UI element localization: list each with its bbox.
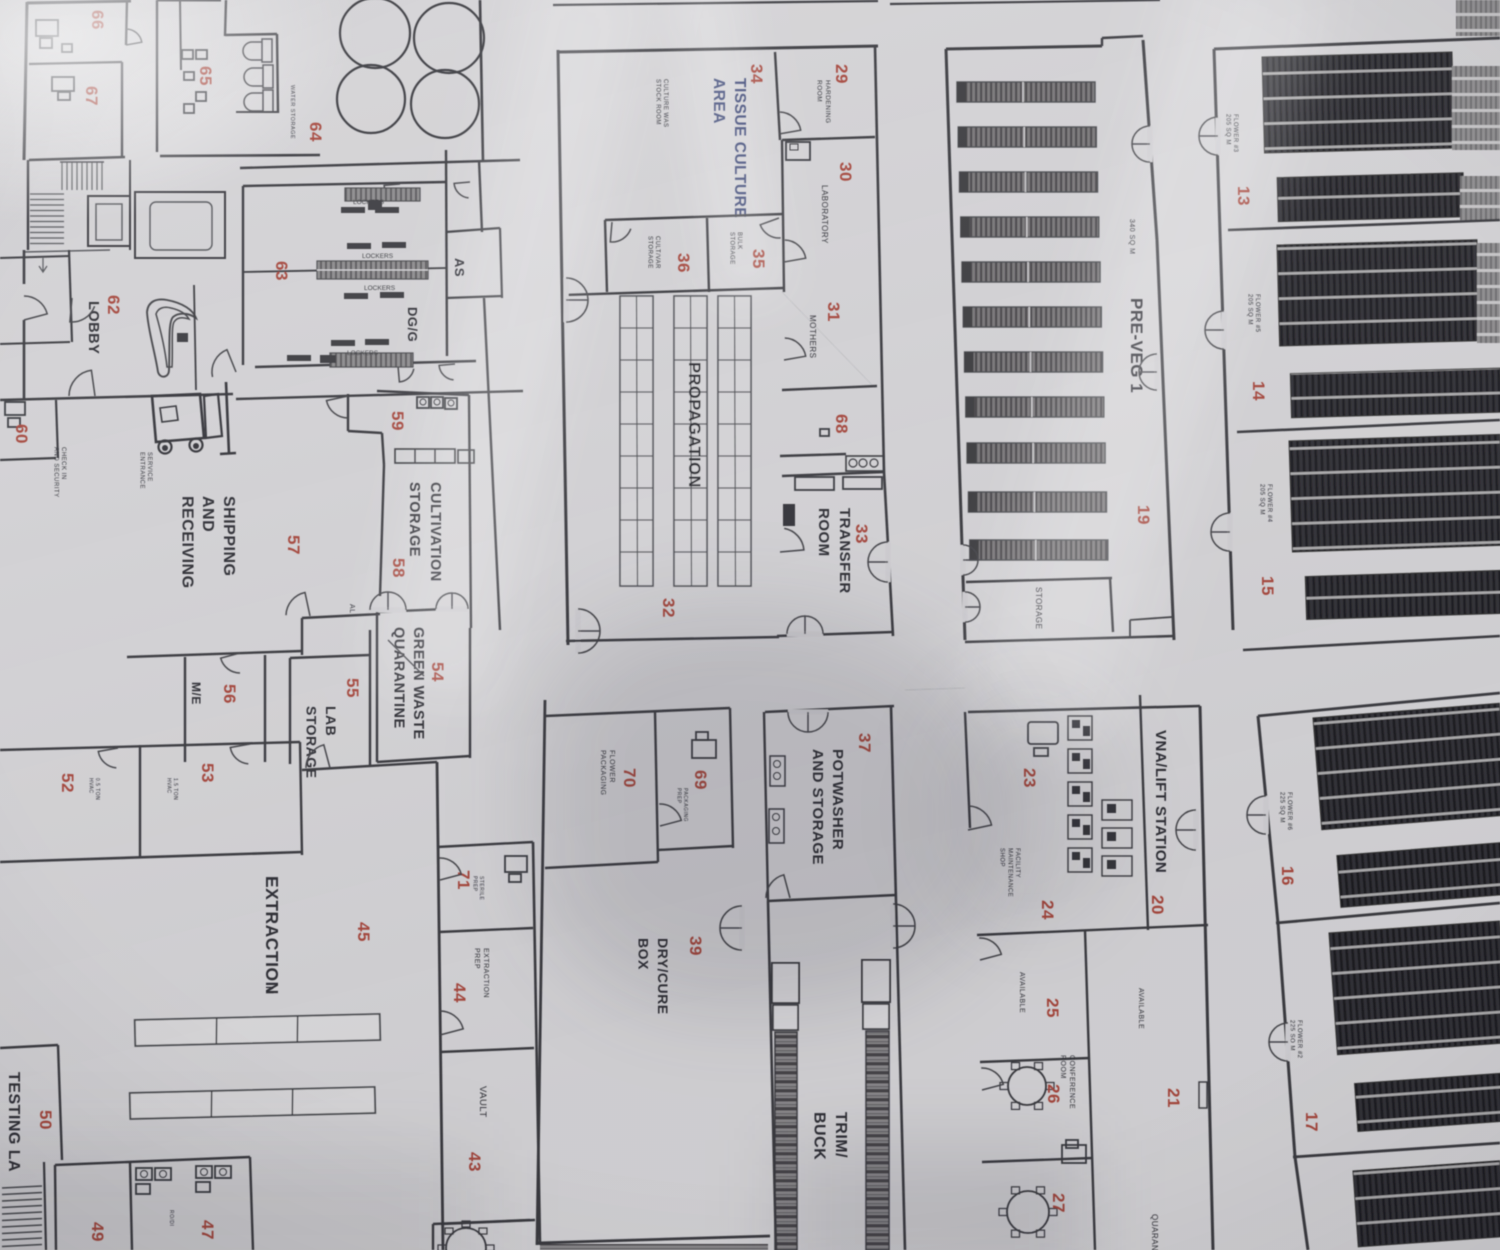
svg-text:RO/DI: RO/DI	[168, 1210, 174, 1226]
svg-text:STERILEPREP: STERILEPREP	[472, 876, 484, 901]
svg-text:23: 23	[1020, 768, 1039, 788]
svg-text:MOTHERS: MOTHERS	[808, 315, 817, 359]
svg-text:N: N	[263, 986, 275, 994]
svg-text:69: 69	[691, 770, 710, 790]
svg-text:14: 14	[1249, 381, 1268, 401]
svg-text:35: 35	[749, 249, 768, 269]
svg-text:STORAGE: STORAGE	[1034, 587, 1043, 629]
svg-text:LOCKERS: LOCKERS	[362, 253, 394, 260]
svg-text:45: 45	[354, 922, 373, 942]
svg-text:FLOWER #4205 SQ M: FLOWER #4205 SQ M	[1258, 484, 1272, 523]
svg-text:44: 44	[450, 983, 469, 1003]
svg-text:CULT/VARSTORAGE: CULT/VARSTORAGE	[646, 236, 660, 269]
svg-text:25: 25	[1043, 998, 1062, 1018]
svg-text:27: 27	[1049, 1193, 1068, 1213]
svg-text:31: 31	[824, 302, 843, 322]
svg-text:54: 54	[428, 662, 447, 682]
svg-text:0.5 TONHVAC: 0.5 TONHVAC	[88, 778, 100, 800]
svg-text:QUARANTINE: QUARANTINE	[1150, 1214, 1159, 1250]
svg-text:CULTIVATIONSTORAGE: CULTIVATIONSTORAGE	[406, 482, 443, 582]
svg-text:66: 66	[88, 10, 107, 30]
svg-text:1.5 TONHVAC: 1.5 TONHVAC	[166, 778, 178, 800]
svg-text:LOCKERS: LOCKERS	[364, 285, 396, 292]
svg-text:VAULT: VAULT	[477, 1086, 488, 1118]
svg-text:70: 70	[620, 768, 639, 788]
svg-text:POTWASHERAND STORAGE: POTWASHERAND STORAGE	[809, 749, 846, 865]
svg-text:TESTING LA: TESTING LA	[5, 1072, 22, 1172]
svg-text:TISSUE CULTUREAREA: TISSUE CULTUREAREA	[710, 78, 748, 218]
svg-text:52: 52	[58, 773, 77, 793]
svg-text:50: 50	[36, 1110, 55, 1130]
svg-text:59: 59	[388, 411, 407, 431]
svg-text:15: 15	[1258, 576, 1277, 596]
svg-text:33: 33	[852, 524, 871, 544]
svg-text:26: 26	[1044, 1084, 1063, 1104]
svg-text:64: 64	[306, 122, 325, 142]
svg-text:CHECK INAND SECURITY: CHECK INAND SECURITY	[52, 447, 66, 498]
svg-text:39: 39	[686, 936, 705, 956]
svg-text:65: 65	[196, 66, 215, 86]
svg-text:36: 36	[674, 253, 693, 273]
svg-text:PROPAGATION: PROPAGATION	[685, 362, 703, 488]
svg-text:PRE-VEG 1: PRE-VEG 1	[1127, 298, 1146, 393]
svg-text:FLOWER #3205 SQ M: FLOWER #3205 SQ M	[1224, 114, 1238, 153]
svg-text:FLOWER #5205 SQ M: FLOWER #5205 SQ M	[1246, 294, 1260, 333]
svg-text:AVAILABLE: AVAILABLE	[1018, 972, 1025, 1013]
svg-text:EXTRACTION: EXTRACTION	[262, 876, 282, 995]
svg-text:WATER STORAGE: WATER STORAGE	[289, 85, 295, 139]
svg-text:FLOWERPACKAGING: FLOWERPACKAGING	[599, 750, 615, 796]
svg-text:71: 71	[454, 870, 473, 890]
svg-text:VNA/LIFT STATION: VNA/LIFT STATION	[1152, 730, 1169, 873]
svg-text:68: 68	[832, 414, 851, 434]
svg-text:CULTURE WASSTOCK ROOM: CULTURE WASSTOCK ROOM	[654, 79, 668, 128]
svg-text:M/E: M/E	[189, 682, 203, 705]
svg-text:BULKSTORAGE: BULKSTORAGE	[728, 232, 742, 265]
svg-text:SERVICEENTRANCE: SERVICEENTRANCE	[138, 452, 152, 489]
svg-text:47: 47	[198, 1220, 217, 1240]
svg-text:63: 63	[272, 261, 291, 281]
svg-text:HARDENINGROOM: HARDENINGROOM	[816, 80, 831, 124]
svg-text:57: 57	[284, 535, 303, 555]
svg-text:24: 24	[1038, 900, 1057, 920]
svg-text:340 SQ M: 340 SQ M	[1128, 219, 1135, 255]
svg-text:SHIPPINGANDRECEIVING: SHIPPINGANDRECEIVING	[178, 496, 237, 589]
svg-text:58: 58	[389, 558, 408, 578]
svg-text:55: 55	[343, 678, 362, 698]
svg-text:17: 17	[1302, 1112, 1321, 1132]
svg-text:21: 21	[1164, 1088, 1183, 1108]
svg-text:16: 16	[1278, 866, 1297, 886]
svg-text:67: 67	[82, 86, 101, 106]
svg-text:DRY/CUREBOX: DRY/CUREBOX	[635, 938, 671, 1015]
svg-text:20: 20	[1148, 895, 1167, 915]
svg-text:LABORATORY: LABORATORY	[820, 185, 829, 244]
svg-text:29: 29	[832, 64, 851, 84]
svg-text:FLOWER #6225 SQ M: FLOWER #6225 SQ M	[1278, 792, 1292, 831]
svg-text:53: 53	[198, 763, 217, 783]
svg-text:EXTRACTIONPREP: EXTRACTIONPREP	[473, 948, 489, 998]
svg-text:AL: AL	[348, 604, 355, 614]
svg-text:13: 13	[1234, 186, 1253, 206]
svg-text:FACILITYMAINTENANCESHOP: FACILITYMAINTENANCESHOP	[999, 848, 1020, 897]
svg-text:43: 43	[465, 1152, 484, 1172]
svg-text:TRANSFERROOM: TRANSFERROOM	[815, 508, 853, 594]
svg-text:56: 56	[220, 684, 239, 704]
svg-text:37: 37	[855, 733, 874, 753]
svg-text:AS: AS	[452, 258, 467, 277]
svg-text:DG/G: DG/G	[405, 307, 420, 342]
svg-text:34: 34	[747, 64, 766, 84]
svg-text:19: 19	[1134, 505, 1153, 525]
svg-text:PACKAGINGPREP: PACKAGINGPREP	[676, 788, 688, 822]
svg-text:49: 49	[88, 1222, 107, 1242]
svg-text:LOCKERS: LOCKERS	[347, 350, 379, 357]
svg-text:30: 30	[836, 162, 855, 182]
svg-text:60: 60	[12, 424, 31, 444]
svg-text:32: 32	[659, 598, 678, 618]
svg-text:AVAILABLE: AVAILABLE	[1137, 988, 1144, 1029]
svg-text:62: 62	[104, 295, 123, 315]
svg-text:GREEN WASTEQUARANTINE: GREEN WASTEQUARANTINE	[390, 627, 426, 740]
svg-text:TRIM/BUCK: TRIM/BUCK	[810, 1112, 849, 1160]
